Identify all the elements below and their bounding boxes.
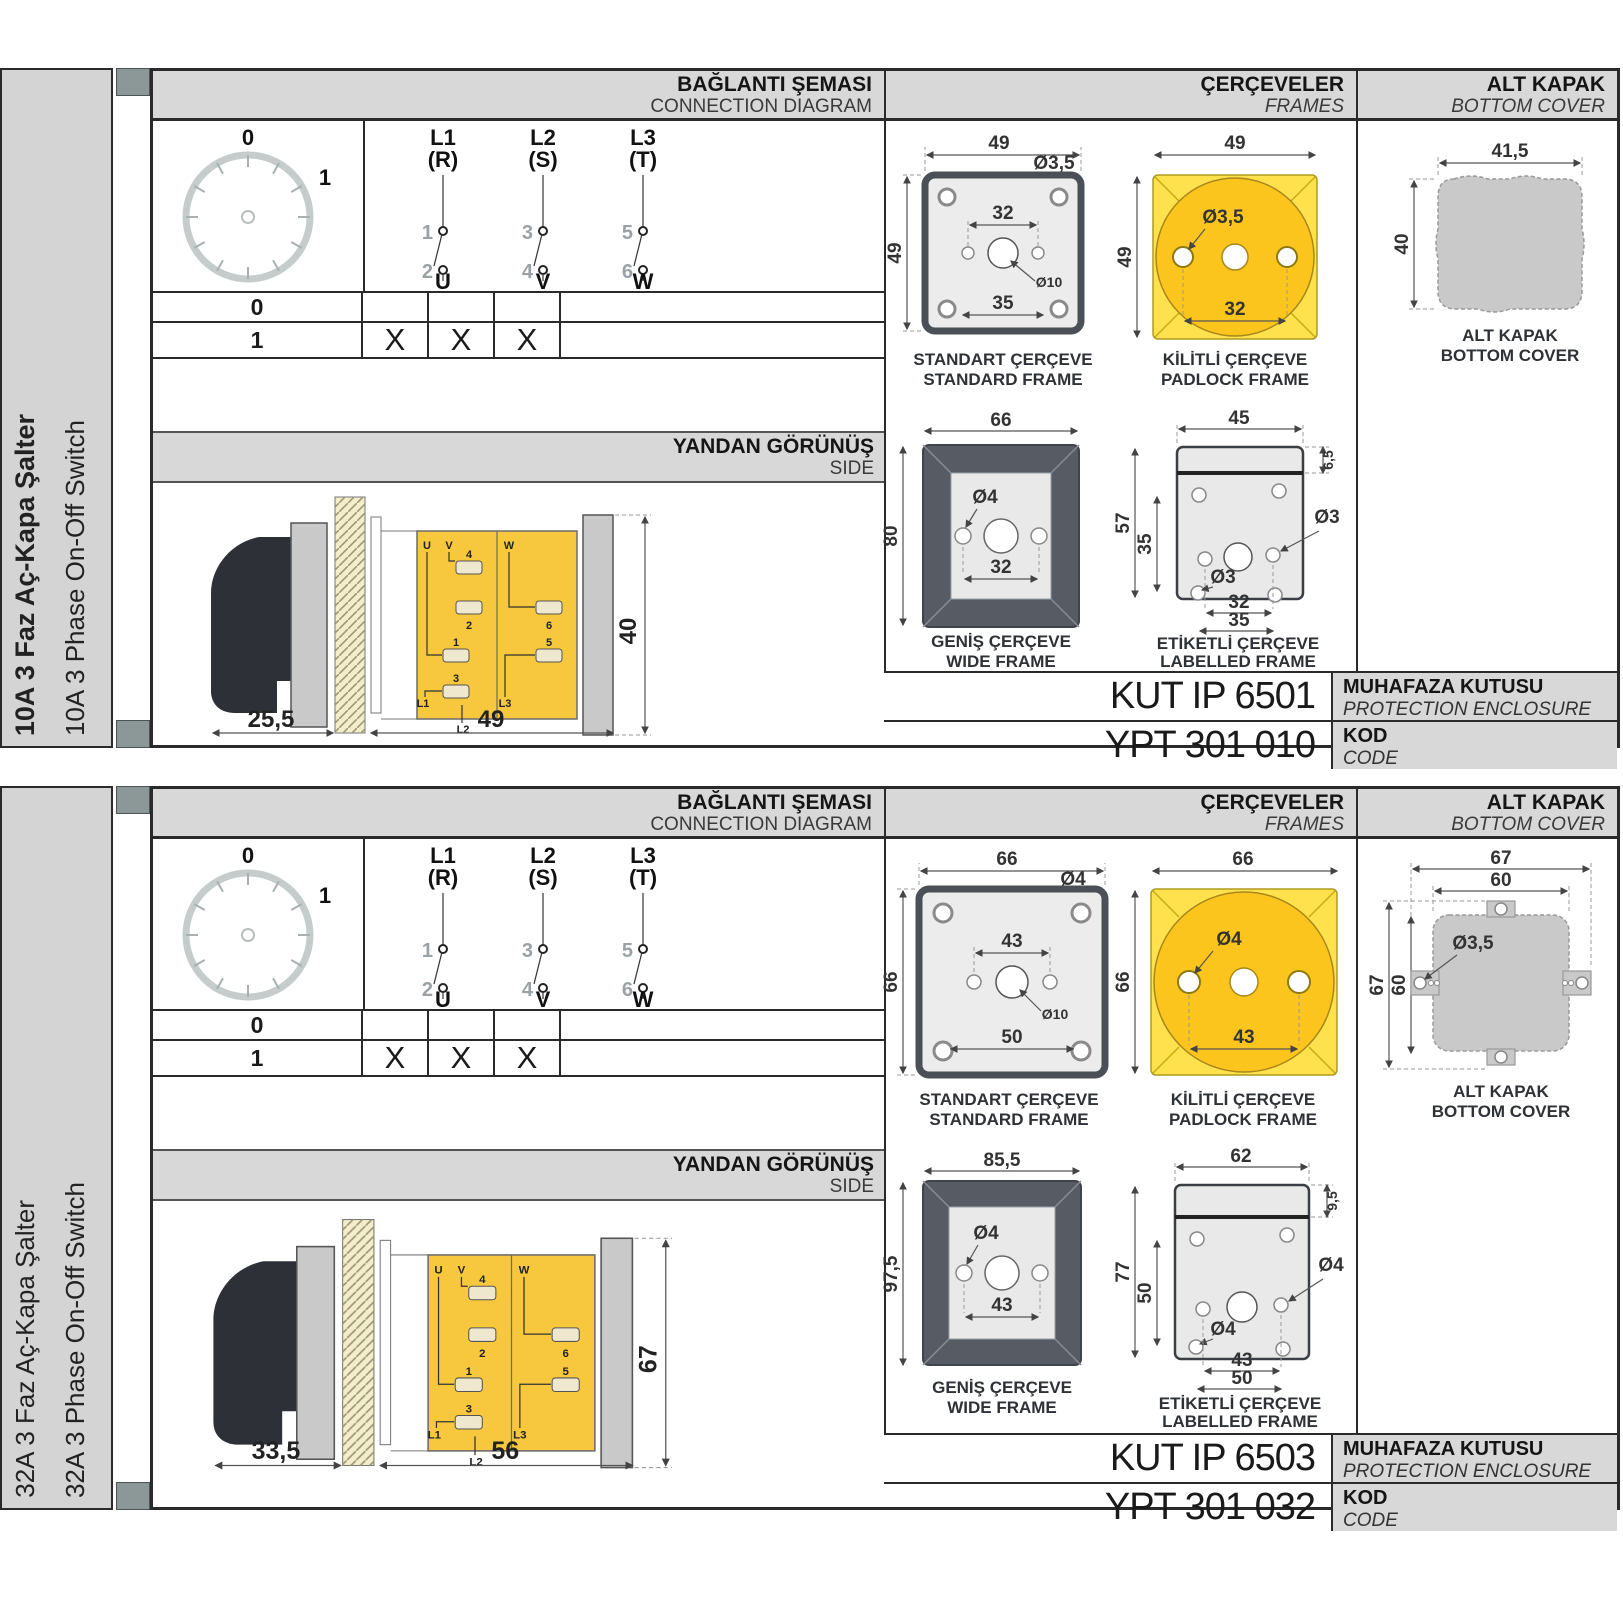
pole-l2: L2 (S) 3 4 V (522, 843, 558, 1012)
dim-span-top: 43 (1001, 931, 1022, 952)
header-frames-tr: ÇERÇEVELER (886, 73, 1344, 96)
terminal-w-label: W (504, 540, 515, 552)
contact-out: 6 (622, 261, 633, 283)
header-cover: ALT KAPAK BOTTOM COVER (1356, 789, 1617, 836)
header-connection: BAĞLANTI ŞEMASI CONNECTION DIAGRAM (153, 789, 884, 836)
caption-en: WIDE FRAME (947, 1398, 1057, 1417)
dim-hole-side: Ø3 (1314, 507, 1339, 528)
dim-frame-width: 62 (1230, 1146, 1251, 1167)
terminal-3-label: 3 (466, 1403, 472, 1415)
terminal-l1-label: L1 (417, 698, 430, 710)
caption-en: BOTTOM COVER (1441, 346, 1580, 365)
dim-hole-bottom: Ø3 (1210, 567, 1235, 588)
table-row: 1 X X X (153, 323, 886, 359)
filler-cell (561, 1011, 886, 1039)
standard-frame-drawing: 49 Ø3,5 49 32 Ø10 35 STANDART ÇERÇEVE ST… (889, 125, 1121, 411)
code-label-tr: KOD (1343, 1487, 1609, 1510)
terminal-l2-label: L2 (457, 724, 470, 736)
position-cell: 1 (153, 323, 363, 357)
position-cell: 0 (153, 293, 363, 321)
contact-out: 6 (622, 979, 633, 1001)
header-frames: ÇERÇEVELER FRAMES (884, 71, 1356, 118)
caption-tr: ETİKETLİ ÇERÇEVE (1157, 634, 1319, 653)
enclosure-label-en: PROTECTION ENCLOSURE (1343, 699, 1609, 720)
cover-body (1436, 176, 1584, 312)
dial-center (242, 929, 254, 941)
enclosure-label: MUHAFAZA KUTUSU PROTECTION ENCLOSURE (1331, 1435, 1617, 1484)
dim-frame-width: 45 (1228, 408, 1250, 429)
dim-span-bottom: 50 (1001, 1027, 1022, 1048)
terminal-4 (469, 1286, 496, 1300)
terminal-3 (443, 685, 469, 698)
panel-hatch (343, 1220, 374, 1466)
datasheet-panel: BAĞLANTI ŞEMASI CONNECTION DIAGRAM ÇERÇE… (150, 786, 1620, 1510)
terminal-2-label: 2 (479, 1348, 485, 1360)
pole-l1: L1 (R) 1 2 U (422, 843, 458, 1012)
dim-frame-width: 85,5 (984, 1150, 1021, 1171)
dim-frame-height: 66 (1113, 971, 1134, 992)
terminal-6 (552, 1328, 579, 1342)
caption-en: LABELLED FRAME (1162, 1412, 1318, 1431)
catalog-page: 10A 3 Faz Aç-Kapa Şalter 10A 3 Phase On-… (0, 0, 1623, 1623)
dim-frame-width: 49 (988, 133, 1009, 154)
terminal-v-label: V (458, 1265, 466, 1277)
mark-cell: X (363, 323, 429, 357)
dim-span: 32 (1224, 299, 1245, 320)
mark-cell: X (363, 1041, 429, 1075)
datasheet-panel: BAĞLANTI ŞEMASI CONNECTION DIAGRAM ÇERÇE… (150, 68, 1620, 748)
padlock-frame-drawing: 66 66 Ø4 43 KİLİTLİ ÇERÇEVE PADLOCK FRAM… (1123, 845, 1355, 1145)
contact-out: 4 (522, 261, 534, 283)
contact-out: 2 (422, 979, 433, 1001)
dim-corner-hole: Ø3,5 (1033, 153, 1075, 174)
header-connection-tr: BAĞLANTI ŞEMASI (153, 791, 872, 814)
binder-tab-bottom (116, 720, 150, 748)
pole-l1: L1 (R) 1 2 U (422, 125, 458, 294)
terminal-2-label: 2 (466, 620, 472, 632)
header-cover-tr: ALT KAPAK (1358, 73, 1605, 96)
pole-phase-label: (T) (629, 147, 657, 172)
mark-cell (363, 1011, 429, 1039)
terminal-3-label: 3 (453, 673, 459, 685)
dim-height: 40 (615, 618, 642, 645)
caption-tr: GENİŞ ÇERÇEVE (931, 632, 1071, 651)
terminal-5 (552, 1378, 579, 1392)
dim-hole: Ø4 (1216, 929, 1242, 950)
standard-frame-drawing: 66 Ø4 66 43 Ø10 50 STANDART ÇERÇEVE STAN… (889, 845, 1121, 1145)
table-row: 0 (153, 293, 886, 323)
dim-width: 56 (491, 1437, 519, 1465)
wide-frame-drawing: 85,5 97,5 Ø4 43 GENİŞ ÇERÇEVE WIDE FRAME (889, 1157, 1119, 1431)
terminal-5-label: 5 (546, 637, 552, 649)
end-plate (601, 1238, 632, 1467)
terminal-6-label: 6 (563, 1348, 569, 1360)
caption-tr: GENİŞ ÇERÇEVE (932, 1378, 1072, 1397)
column-headers: BAĞLANTI ŞEMASI CONNECTION DIAGRAM ÇERÇE… (153, 71, 1617, 121)
dim-frame-height: 57 (1113, 512, 1134, 533)
dim-frame-width: 66 (990, 410, 1011, 431)
terminal-4-label: 4 (479, 1274, 486, 1286)
column-headers: BAĞLANTI ŞEMASI CONNECTION DIAGRAM ÇERÇE… (153, 789, 1617, 839)
header-connection: BAĞLANTI ŞEMASI CONNECTION DIAGRAM (153, 71, 884, 118)
enclosure-code: KUT IP 6503 (884, 1435, 1331, 1484)
dial-position-0: 0 (242, 125, 254, 150)
header-cover-en: BOTTOM COVER (1358, 96, 1605, 117)
terminal-3 (455, 1415, 482, 1429)
bottom-cover-drawing: 67 60 67 60 Ø3,5 ALT KAPAK BOTTOM COVER (1365, 853, 1621, 1143)
header-cover-en: BOTTOM COVER (1358, 814, 1605, 835)
pole-phase-label: (T) (629, 865, 657, 890)
dim-frame-width: 66 (1232, 849, 1253, 870)
labelled-frame-drawing: 45 6,5 Ø3 57 35 Ø3 32 35 ETİKETLİ ÇERÇEV… (1119, 411, 1357, 669)
position-cell: 1 (153, 1041, 363, 1075)
column-border (884, 839, 886, 1433)
caption-en: STANDARD FRAME (923, 370, 1082, 389)
header-frames-en: FRAMES (886, 96, 1344, 117)
front-plate (297, 1247, 335, 1460)
code-label: KOD CODE (1331, 722, 1617, 769)
product-title-tr: 10A 3 Faz Aç-Kapa Şalter (10, 414, 41, 736)
product-title-en: 10A 3 Phase On-Off Switch (60, 420, 91, 736)
dim-span: 43 (1233, 1027, 1254, 1048)
caption-en: PADLOCK FRAME (1161, 370, 1309, 389)
pole-phase-label: (S) (528, 865, 557, 890)
dim-frame-height: 66 (881, 971, 902, 992)
shaft-hole (985, 1256, 1019, 1290)
spacer-plate (380, 1240, 390, 1444)
position-cell: 0 (153, 1011, 363, 1039)
terminal-2 (456, 601, 482, 614)
dial-center (242, 211, 254, 223)
dim-depth: 25,5 (248, 706, 295, 733)
dim-cover-width: 41,5 (1492, 141, 1529, 162)
contact-in: 3 (522, 940, 533, 962)
binder-tab-top (116, 68, 150, 96)
enclosure-label: MUHAFAZA KUTUSU PROTECTION ENCLOSURE (1331, 673, 1617, 722)
terminal-1-label: 1 (453, 637, 459, 649)
enclosure-code: KUT IP 6501 (884, 673, 1331, 722)
caption-en: WIDE FRAME (946, 652, 1056, 671)
dim-frame-height: 77 (1113, 1261, 1134, 1282)
pole-l3: L3 (T) 5 6 W (622, 843, 657, 1012)
switch-handle (211, 537, 291, 713)
binder-tab-top (116, 786, 150, 814)
header-connection-tr: BAĞLANTI ŞEMASI (153, 73, 872, 96)
mark-cell: X (429, 323, 495, 357)
shaft-hole (1227, 1292, 1257, 1322)
section-32a: 32A 3 Faz Aç-Kapa Şalter 32A 3 Phase On-… (0, 786, 1623, 1510)
dim-center-hole: Ø10 (1036, 274, 1063, 290)
header-frames: ÇERÇEVELER FRAMES (884, 789, 1356, 836)
enclosure-label-en: PROTECTION ENCLOSURE (1343, 1461, 1609, 1482)
product-sidebar: 32A 3 Faz Aç-Kapa Şalter 32A 3 Phase On-… (0, 786, 113, 1510)
mark-cell (495, 293, 561, 321)
dim-depth: 33,5 (252, 1437, 301, 1465)
product-title-tr: 32A 3 Faz Aç-Kapa Şalter (10, 1200, 41, 1498)
table-row: 1 X X X (153, 1041, 886, 1077)
terminal-l2-label: L2 (469, 1456, 482, 1468)
dim-center-hole: Ø10 (1042, 1006, 1069, 1022)
mark-cell (429, 1011, 495, 1039)
contact-in: 5 (622, 940, 633, 962)
switch-dial-diagram: 0 1 (153, 841, 363, 1009)
dim-frame-height: 80 (881, 525, 902, 546)
header-connection-en: CONNECTION DIAGRAM (153, 96, 872, 117)
table-row: 0 (153, 1011, 886, 1041)
terminal-4 (456, 561, 482, 574)
code-table: KUT IP 6501 MUHAFAZA KUTUSU PROTECTION E… (884, 671, 1617, 745)
filler-cell (561, 1041, 886, 1075)
dim-cover-inner-height: 60 (1389, 974, 1410, 995)
product-sidebar: 10A 3 Faz Aç-Kapa Şalter 10A 3 Phase On-… (0, 68, 113, 748)
shaft-hole (1222, 244, 1248, 270)
dim-cover-hole: Ø3,5 (1452, 933, 1494, 954)
spacer-plate (371, 517, 381, 713)
terminal-6 (536, 601, 562, 614)
caption-tr: ALT KAPAK (1462, 326, 1558, 345)
dim-span-bottom: 35 (992, 293, 1014, 314)
dim-cover-inner-width: 60 (1490, 870, 1511, 891)
mark-cell: X (495, 1041, 561, 1075)
shaft-hole (1230, 968, 1258, 996)
dim-height: 67 (634, 1345, 662, 1373)
filler-cell (561, 293, 886, 321)
dim-strip: 9,5 (1324, 1191, 1340, 1211)
dim-hole: Ø4 (972, 487, 998, 508)
wide-frame-drawing: 66 80 Ø4 32 GENİŞ ÇERÇEVE WIDE FRAME (889, 417, 1119, 669)
terminal-l1-label: L1 (428, 1429, 442, 1441)
dim-hole-side: Ø4 (1318, 1255, 1344, 1276)
code-label-en: CODE (1343, 1510, 1609, 1531)
dim-span2: 35 (1228, 610, 1250, 631)
end-plate (583, 515, 613, 735)
pole-phase-label: (S) (528, 147, 557, 172)
dim-inner-height: 50 (1135, 1282, 1156, 1303)
dial-position-1: 1 (319, 165, 331, 190)
caption-tr: ETİKETLİ ÇERÇEVE (1159, 1394, 1321, 1413)
mark-cell: X (429, 1041, 495, 1075)
mark-cell (363, 293, 429, 321)
section-10a: 10A 3 Faz Aç-Kapa Şalter 10A 3 Phase On-… (0, 68, 1623, 748)
panel-hatch (335, 497, 365, 733)
labelled-frame-drawing: 62 9,5 Ø4 77 50 Ø4 43 50 ETİKETLİ ÇERÇEV… (1119, 1149, 1357, 1431)
terminal-2 (469, 1328, 496, 1342)
dim-span-top: 32 (992, 203, 1013, 224)
column-border (884, 121, 886, 671)
terminal-1 (443, 649, 469, 662)
padlock-frame-drawing: 49 49 Ø3,5 32 KİLİTLİ ÇERÇEVE PADLOCK FR… (1123, 125, 1355, 411)
header-frames-en: FRAMES (886, 814, 1344, 835)
pole-phase-label: (R) (428, 865, 459, 890)
side-header-tr: YANDAN GÖRÜNÜŞ (153, 1153, 874, 1176)
enclosure-label-tr: MUHAFAZA KUTUSU (1343, 1438, 1609, 1461)
caption-tr: KİLİTLİ ÇERÇEVE (1171, 1090, 1316, 1109)
switching-table: 0 1 X X X (153, 1009, 886, 1077)
dim-hole: Ø4 (973, 1223, 999, 1244)
dim-frame-width: 66 (996, 849, 1017, 870)
mark-cell: X (495, 323, 561, 357)
terminal-5-label: 5 (563, 1366, 570, 1378)
pole-phase-label: (R) (428, 147, 459, 172)
contact-out: 2 (422, 261, 433, 283)
terminal-5 (536, 649, 562, 662)
switch-dial-diagram: 0 1 (153, 123, 363, 291)
bottom-cover-drawing: 41,5 40 ALT KAPAK BOTTOM COVER (1368, 141, 1618, 391)
dim-hole-bottom: Ø4 (1210, 1319, 1236, 1340)
side-view-drawing: U V W 4 2 1 3 6 5 L1 L2 L3 25, (159, 485, 859, 745)
filler-cell (561, 323, 886, 357)
side-header-en: SIDE (153, 1176, 874, 1197)
side-header-en: SIDE (153, 458, 874, 479)
header-cover: ALT KAPAK BOTTOM COVER (1356, 71, 1617, 118)
contact-in: 5 (622, 222, 633, 244)
dim-span2: 50 (1231, 1368, 1252, 1389)
terminal-u-label: U (434, 1265, 442, 1277)
side-view-header: YANDAN GÖRÜNÜŞ SIDE (153, 431, 886, 483)
caption-tr: ALT KAPAK (1453, 1082, 1549, 1101)
code-label: KOD CODE (1331, 1484, 1617, 1531)
code-label-en: CODE (1343, 748, 1609, 769)
dim-cover-height: 40 (1392, 233, 1413, 254)
pole-circuit-diagram: L1 (R) 1 2 U L2 (S) 3 4 (365, 123, 885, 291)
contact-out: 4 (522, 979, 534, 1001)
header-cover-tr: ALT KAPAK (1358, 791, 1605, 814)
caption-tr: KİLİTLİ ÇERÇEVE (1163, 350, 1308, 369)
dim-strip: 6,5 (1320, 450, 1336, 470)
product-code: YPT 301 010 (884, 722, 1331, 769)
caption-tr: STANDART ÇERÇEVE (919, 1090, 1098, 1109)
dim-cover-outer-height: 67 (1367, 974, 1388, 995)
caption-en: PADLOCK FRAME (1169, 1110, 1317, 1129)
terminal-u-label: U (423, 540, 431, 552)
pole-l3: L3 (T) 5 6 W (622, 125, 657, 294)
dim-frame-height: 49 (885, 242, 906, 263)
frame-body (1175, 1185, 1309, 1359)
dim-width: 49 (478, 706, 505, 733)
shaft-hole (984, 519, 1018, 553)
binder-tab-bottom (116, 1482, 150, 1510)
dim-hole: Ø3,5 (1202, 207, 1244, 228)
dim-frame-width: 49 (1224, 133, 1245, 154)
dim-cover-outer-width: 67 (1490, 848, 1511, 869)
contact-in: 3 (522, 222, 533, 244)
dim-span: 32 (990, 557, 1011, 578)
dim-frame-height: 97,5 (881, 1255, 902, 1292)
side-view-drawing: U V W 4 2 1 3 6 5 L1 L2 L3 33, (159, 1207, 889, 1478)
contact-in: 1 (422, 222, 433, 244)
terminal-4-label: 4 (466, 549, 473, 561)
terminal-v-label: V (445, 540, 453, 552)
header-frames-tr: ÇERÇEVELER (886, 791, 1344, 814)
caption-en: STANDARD FRAME (929, 1110, 1088, 1129)
dim-inner-height: 35 (1135, 533, 1156, 555)
mark-cell (495, 1011, 561, 1039)
dial-position-1: 1 (319, 883, 331, 908)
contact-in: 1 (422, 940, 433, 962)
code-label-tr: KOD (1343, 725, 1609, 748)
product-code: YPT 301 032 (884, 1484, 1331, 1531)
pole-circuit-diagram: L1 (R) 1 2 U L2 (S) 3 4 (365, 841, 885, 1009)
side-header-tr: YANDAN GÖRÜNÜŞ (153, 435, 874, 458)
pole-l2: L2 (S) 3 4 V (522, 125, 558, 294)
mark-cell (429, 293, 495, 321)
dial-position-0: 0 (242, 843, 254, 868)
header-connection-en: CONNECTION DIAGRAM (153, 814, 872, 835)
enclosure-label-tr: MUHAFAZA KUTUSU (1343, 676, 1609, 699)
terminal-1-label: 1 (466, 1366, 473, 1378)
terminal-w-label: W (519, 1265, 530, 1277)
dim-span: 43 (991, 1295, 1012, 1316)
side-view-header: YANDAN GÖRÜNÜŞ SIDE (153, 1149, 886, 1201)
switch-handle (213, 1261, 296, 1444)
switching-table: 0 1 X X X (153, 291, 886, 359)
caption-en: BOTTOM COVER (1432, 1102, 1571, 1121)
caption-en: LABELLED FRAME (1160, 652, 1316, 671)
product-title-en: 32A 3 Phase On-Off Switch (60, 1182, 91, 1498)
frame-body (1177, 447, 1303, 599)
terminal-6-label: 6 (546, 620, 552, 632)
terminal-1 (455, 1378, 482, 1392)
code-table: KUT IP 6503 MUHAFAZA KUTUSU PROTECTION E… (884, 1433, 1617, 1507)
front-plate (291, 523, 327, 727)
caption-tr: STANDART ÇERÇEVE (913, 350, 1092, 369)
dim-frame-height: 49 (1115, 246, 1136, 267)
